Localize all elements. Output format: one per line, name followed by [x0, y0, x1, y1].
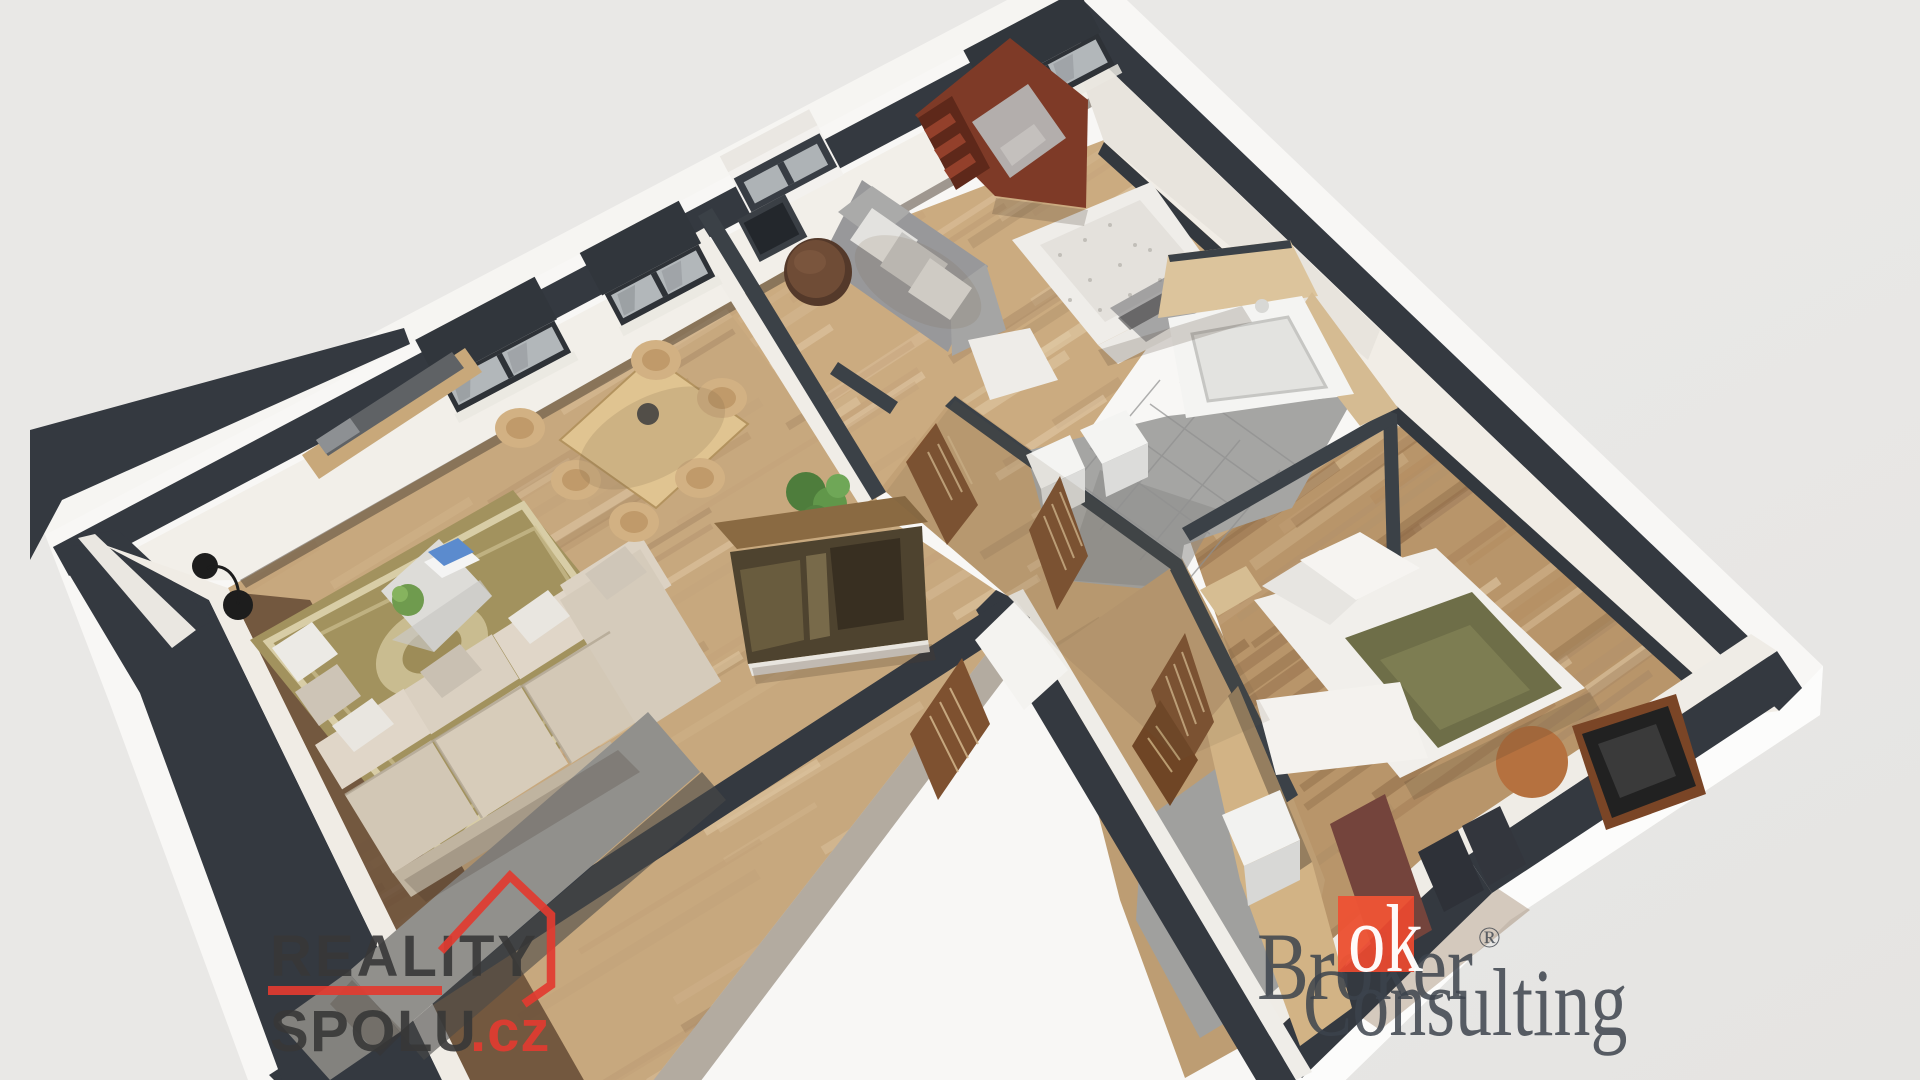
svg-text:SPOLU: SPOLU	[270, 999, 477, 1064]
svg-text:.cz: .cz	[470, 999, 550, 1064]
svg-text:®: ®	[1478, 921, 1501, 954]
svg-text:REALITY: REALITY	[270, 924, 539, 989]
svg-text:Consulting: Consulting	[1303, 950, 1627, 1056]
